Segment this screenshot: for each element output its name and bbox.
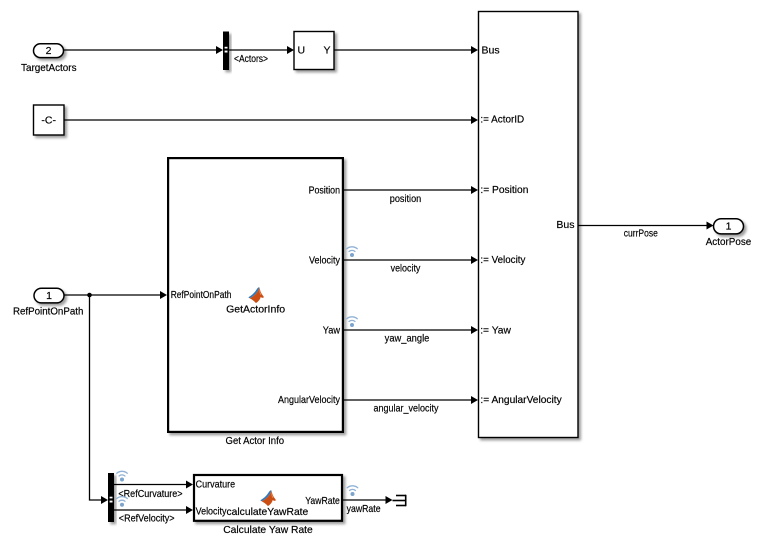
svg-text::= Position: := Position — [480, 184, 528, 196]
svg-text:Calculate Yaw Rate: Calculate Yaw Rate — [223, 524, 313, 536]
svg-text:<Actors>: <Actors> — [234, 53, 268, 65]
svg-text:Bus: Bus — [482, 44, 500, 56]
svg-text:1: 1 — [46, 290, 52, 302]
svg-text:currPose: currPose — [624, 227, 658, 239]
svg-text:yawRate: yawRate — [347, 503, 381, 515]
svg-text:Velocity: Velocity — [196, 506, 228, 518]
svg-text::= ActorID: := ActorID — [480, 114, 524, 126]
svg-text:Y: Y — [323, 45, 330, 57]
svg-text:TargetActors: TargetActors — [21, 62, 77, 74]
svg-text::= Yaw: := Yaw — [480, 324, 511, 336]
svg-text::= Velocity: := Velocity — [480, 254, 526, 266]
svg-text:1: 1 — [726, 221, 732, 233]
svg-text:Bus: Bus — [556, 219, 574, 231]
svg-text:velocity: velocity — [391, 262, 421, 274]
svg-text:<RefVelocity>: <RefVelocity> — [119, 513, 175, 525]
svg-text:Curvature: Curvature — [196, 479, 236, 491]
svg-text:Velocity: Velocity — [309, 255, 341, 267]
svg-text:AngularVelocity: AngularVelocity — [278, 394, 341, 406]
svg-text:yaw_angle: yaw_angle — [385, 333, 430, 345]
svg-text:U: U — [298, 45, 306, 57]
svg-text:ActorPose: ActorPose — [706, 236, 752, 248]
svg-text:GetActorInfo: GetActorInfo — [226, 303, 285, 315]
svg-text:Yaw: Yaw — [323, 325, 341, 337]
svg-text:Get Actor Info: Get Actor Info — [226, 435, 285, 447]
svg-text:Position: Position — [309, 185, 341, 197]
svg-text:RefPointOnPath: RefPointOnPath — [171, 289, 232, 301]
svg-text:position: position — [390, 193, 422, 205]
svg-text::= AngularVelocity: := AngularVelocity — [480, 394, 562, 406]
svg-text:2: 2 — [46, 45, 52, 57]
svg-text:angular_velocity: angular_velocity — [374, 403, 440, 415]
svg-text:RefPointOnPath: RefPointOnPath — [13, 305, 84, 317]
svg-text:calculateYawRate: calculateYawRate — [227, 506, 309, 518]
svg-text:<RefCurvature>: <RefCurvature> — [118, 488, 182, 500]
svg-text:-C-: -C- — [41, 114, 56, 126]
svg-text:YawRate: YawRate — [305, 495, 340, 507]
